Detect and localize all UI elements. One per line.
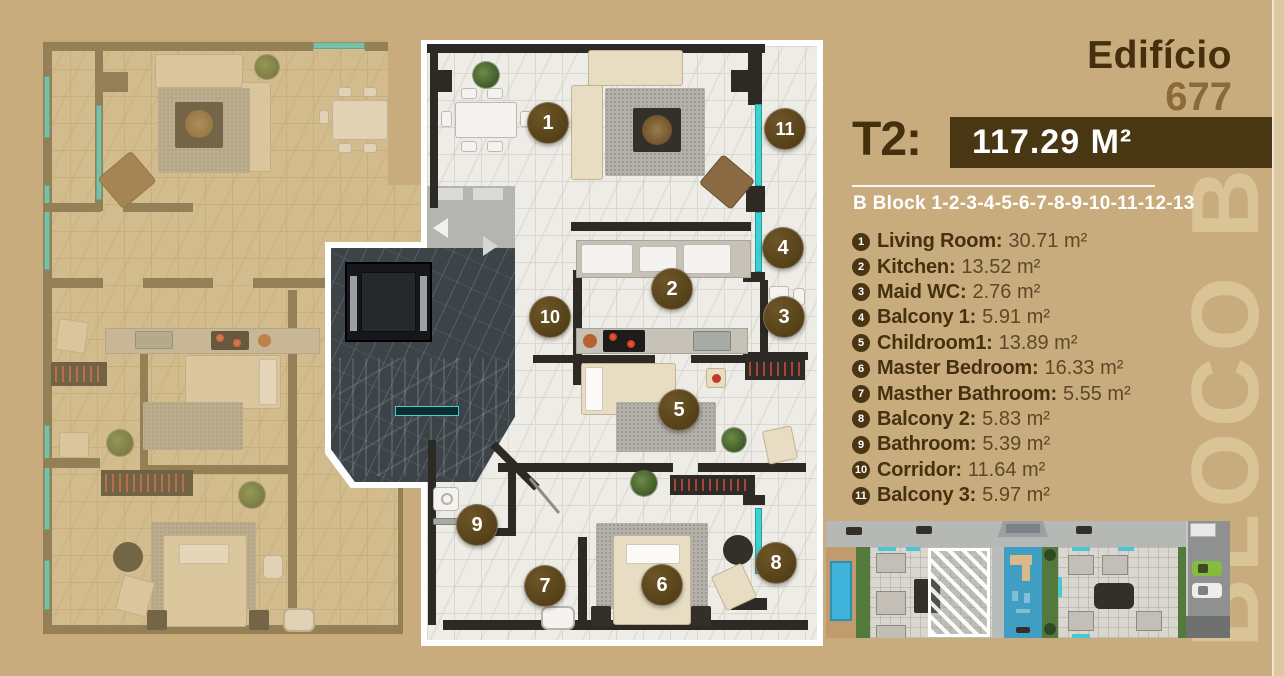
- room-number-badge: 7: [852, 385, 870, 403]
- vestibule-floor: [427, 186, 515, 248]
- room-area: 16.33 m²: [1044, 357, 1123, 380]
- walkway: [992, 547, 1004, 638]
- marker-number: 6: [656, 574, 667, 597]
- floor-plan: 1 2 3 4 5 6 7 8 9 10 11: [43, 40, 810, 637]
- hedge: [856, 547, 870, 638]
- chair: [487, 88, 503, 99]
- room-marker-kitchen: 2: [651, 268, 693, 310]
- block-floors-line: B Block 1-2-3-4-5-6-7-8-9-10-11-12-13: [853, 193, 1195, 215]
- arrow-left-icon: [433, 218, 448, 238]
- wall: [746, 186, 765, 212]
- road-dark-patch: [1186, 616, 1230, 638]
- building-number: 677: [1087, 77, 1232, 117]
- dining-table: [455, 102, 517, 138]
- swimming-pool: [830, 561, 852, 621]
- nightstand: [706, 368, 726, 388]
- balcony-tick: [906, 547, 920, 551]
- room-marker-childroom: 5: [658, 389, 700, 431]
- room-marker-master: 6: [641, 564, 683, 606]
- room-marker-maidwc: 3: [763, 296, 805, 338]
- room-marker-balcony1: 4: [762, 227, 804, 269]
- marker-number: 11: [775, 119, 794, 140]
- sofa: [588, 50, 683, 86]
- chair: [441, 111, 452, 127]
- plant: [631, 470, 657, 496]
- room-label: Childroom1:: [877, 332, 993, 355]
- tree: [1044, 623, 1056, 635]
- room-number-badge: 1: [852, 233, 870, 251]
- room-row: 2Kitchen:13.52 m²: [852, 254, 1131, 279]
- room-number-badge: 5: [852, 334, 870, 352]
- gym-item: [1012, 591, 1018, 601]
- kitchen-sink: [693, 331, 731, 351]
- elevator: [345, 262, 432, 342]
- marker-number: 2: [666, 278, 677, 301]
- building-brand: Edifício 677: [1087, 36, 1232, 117]
- unit-outline: [876, 553, 906, 573]
- wall: [430, 70, 452, 92]
- room-area: 5.55 m²: [1063, 383, 1131, 406]
- room-label: Balcony 2:: [877, 408, 976, 431]
- room-row: 11Balcony 3:5.97 m²: [852, 483, 1131, 508]
- kitchen-cabinet: [581, 244, 633, 274]
- highlighted-unit-location: [928, 548, 990, 637]
- room-area: 13.52 m²: [961, 256, 1040, 279]
- bathtub: [541, 606, 575, 630]
- room-number-badge: 11: [852, 487, 870, 505]
- coffee-table: [633, 108, 681, 152]
- unit-outline: [1068, 611, 1094, 631]
- elevator-cab: [361, 272, 416, 332]
- bench: [1076, 526, 1092, 534]
- bench: [1016, 627, 1030, 633]
- room-number-badge: 10: [852, 461, 870, 479]
- room-marker-corridor: 10: [529, 296, 571, 338]
- brochure-page: 1 2 3 4 5 6 7 8 9 10 11 BLOCO B Edifício…: [0, 0, 1284, 676]
- balcony-tick: [1072, 547, 1090, 551]
- room-number-badge: 8: [852, 410, 870, 428]
- arrow-right-icon: [483, 236, 498, 256]
- room-area: 5.83 m²: [982, 408, 1050, 431]
- building-name: Edifício: [1087, 36, 1232, 75]
- room-row: 9Bathroom:5.39 m²: [852, 432, 1131, 457]
- courtyard: [1004, 547, 1042, 638]
- room-marker-masterbath: 7: [524, 565, 566, 607]
- room-area: 5.97 m²: [982, 484, 1050, 507]
- unit-outline: [1136, 611, 1162, 631]
- plant: [722, 428, 746, 452]
- building-core: [1094, 583, 1134, 609]
- room-number-badge: 2: [852, 258, 870, 276]
- marker-number: 3: [778, 306, 789, 329]
- playground: [1022, 565, 1030, 581]
- unit-outline: [876, 625, 906, 638]
- room-row: 7Masther Bathroom:5.55 m²: [852, 381, 1131, 406]
- round-table: [723, 535, 753, 565]
- room-label: Masther Bathroom:: [877, 383, 1057, 406]
- unit-area-value: 117.29 M²: [972, 123, 1132, 162]
- room-area: 13.89 m²: [999, 332, 1078, 355]
- room-number-badge: 3: [852, 283, 870, 301]
- nightstand: [591, 606, 611, 626]
- wall: [748, 53, 762, 105]
- divider-line: [852, 185, 1155, 187]
- gym-item: [1016, 609, 1030, 613]
- wall: [508, 472, 516, 534]
- marker-number: 4: [777, 237, 788, 260]
- page-edge-strip: [1272, 0, 1284, 676]
- wall: [743, 495, 765, 505]
- room-number-badge: 6: [852, 360, 870, 378]
- site-plan-thumbnail: [826, 521, 1230, 638]
- stove: [603, 330, 645, 352]
- wardrobe: [745, 358, 805, 380]
- room-area: 5.91 m²: [982, 306, 1050, 329]
- room-row: 4Balcony 1:5.91 m²: [852, 305, 1131, 330]
- chair: [487, 141, 503, 152]
- stair-rail-teal: [395, 406, 459, 416]
- marker-number: 1: [542, 112, 553, 135]
- marker-number: 7: [539, 575, 550, 598]
- elevator-rail: [420, 276, 427, 331]
- plant: [473, 62, 499, 88]
- stairs: [339, 358, 509, 476]
- door-opening: [473, 188, 503, 200]
- room-label: Balcony 1:: [877, 306, 976, 329]
- room-number-badge: 4: [852, 309, 870, 327]
- wall: [698, 463, 806, 472]
- room-label: Maid WC:: [877, 281, 967, 304]
- marker-number: 8: [770, 552, 781, 575]
- building-b-plan: [1058, 547, 1178, 638]
- elevator-rail: [350, 276, 357, 331]
- chair: [461, 88, 477, 99]
- room-row: 10Corridor:11.64 m²: [852, 458, 1131, 483]
- marker-number: 5: [673, 399, 684, 422]
- cooking-pot: [583, 334, 597, 348]
- room-area: 5.39 m²: [982, 433, 1050, 456]
- room-number-badge: 9: [852, 436, 870, 454]
- window-glass: [755, 104, 762, 186]
- room-label: Living Room:: [877, 230, 1002, 253]
- room-label: Balcony 3:: [877, 484, 976, 507]
- unit-outline: [876, 591, 906, 615]
- green-car: [1192, 561, 1222, 576]
- bench: [916, 526, 932, 534]
- room-label: Corridor:: [877, 459, 962, 482]
- room-legend: 1Living Room:30.71 m² 2Kitchen:13.52 m² …: [852, 229, 1131, 508]
- wall: [428, 440, 436, 625]
- wall: [533, 355, 655, 363]
- hedge: [1178, 547, 1186, 638]
- wall: [578, 537, 587, 629]
- marker-number: 10: [540, 307, 560, 328]
- road: [1186, 521, 1230, 638]
- car-windshield: [1198, 564, 1208, 573]
- room-label: Bathroom:: [877, 433, 976, 456]
- white-car: [1192, 583, 1222, 598]
- room-row: 8Balcony 2:5.83 m²: [852, 407, 1131, 432]
- room-row: 3Maid WC:2.76 m²: [852, 280, 1131, 305]
- table-decor: [642, 115, 672, 145]
- bench: [846, 527, 862, 535]
- crosswalk-sign: [1190, 523, 1216, 537]
- wall: [691, 355, 751, 363]
- marker-number: 9: [471, 514, 482, 537]
- nightstand: [691, 606, 711, 626]
- playground: [1010, 555, 1032, 565]
- unit-outline: [1102, 555, 1128, 575]
- room-row: 5Childroom1:13.89 m²: [852, 331, 1131, 356]
- unit-outline: [1068, 555, 1094, 575]
- entrance-inner: [1006, 524, 1040, 533]
- room-area: 11.64 m²: [968, 459, 1045, 482]
- lamp: [712, 374, 721, 383]
- room-label: Kitchen:: [877, 256, 955, 279]
- wall: [571, 222, 751, 231]
- gym-item: [1024, 593, 1030, 603]
- balcony-tick: [1072, 634, 1090, 638]
- room-label: Master Bedroom:: [877, 357, 1038, 380]
- window-glass: [755, 212, 762, 272]
- chair: [461, 141, 477, 152]
- room-row: 1Living Room:30.71 m²: [852, 229, 1131, 254]
- tree: [1044, 549, 1056, 561]
- pillow: [626, 544, 680, 564]
- room-marker-balcony3: 11: [764, 108, 806, 150]
- room-marker-bathroom: 9: [456, 504, 498, 546]
- washer-door: [441, 493, 453, 505]
- car-windshield: [1198, 586, 1208, 595]
- pillow: [585, 367, 603, 411]
- room-row: 6Master Bedroom:16.33 m²: [852, 356, 1131, 381]
- hedge: [1042, 547, 1058, 638]
- room-marker-balcony2: 8: [755, 542, 797, 584]
- wardrobe: [670, 475, 755, 495]
- washer: [433, 487, 459, 511]
- balcony-tick: [878, 547, 896, 551]
- kitchen-cabinet: [683, 244, 731, 274]
- unit-type-label: T2:: [852, 112, 921, 167]
- entrance-canopy: [998, 521, 1048, 537]
- balcony-tick: [1118, 547, 1134, 551]
- sofa: [571, 85, 603, 180]
- room-area: 30.71 m²: [1008, 230, 1087, 253]
- room-area: 2.76 m²: [973, 281, 1041, 304]
- plan-gap: [388, 40, 425, 185]
- unit-area-box: 117.29 M²: [950, 117, 1284, 168]
- room-marker-living: 1: [527, 102, 569, 144]
- balcony-tick: [1058, 577, 1062, 597]
